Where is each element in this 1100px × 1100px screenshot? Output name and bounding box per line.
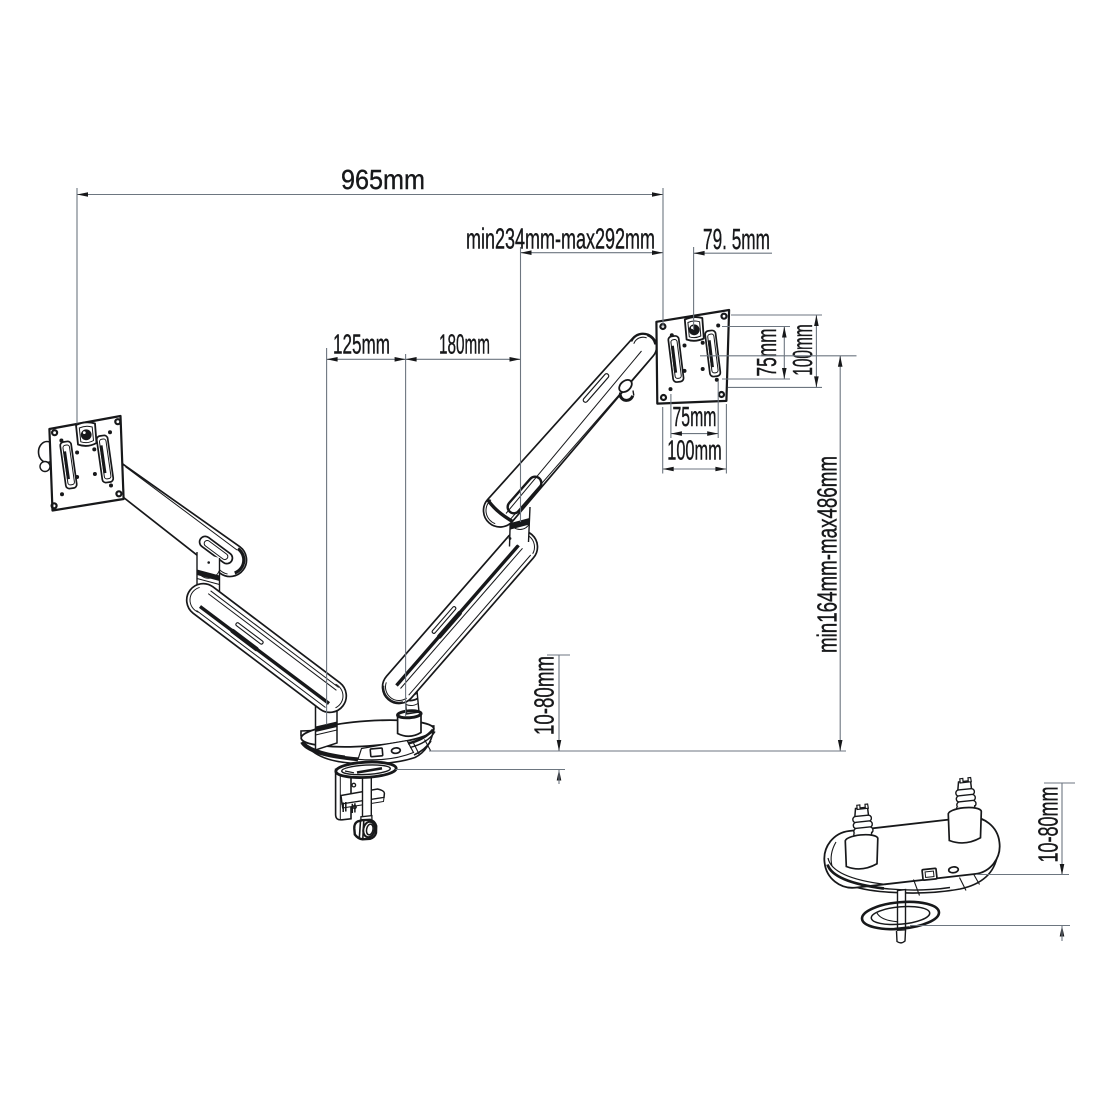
svg-text:75mm: 75mm [673,401,717,432]
svg-text:75mm: 75mm [751,329,782,377]
svg-text:125mm: 125mm [333,329,390,360]
svg-text:10-80mm: 10-80mm [1033,787,1064,863]
svg-text:100mm: 100mm [667,435,722,466]
svg-text:min164mm-max486mm: min164mm-max486mm [812,456,843,653]
svg-text:965mm: 965mm [341,164,425,195]
svg-text:10-80mm: 10-80mm [529,656,560,735]
svg-text:min234mm-max292mm: min234mm-max292mm [466,224,655,256]
svg-text:79. 5mm: 79. 5mm [703,224,770,256]
svg-text:100mm: 100mm [787,324,818,376]
svg-text:180mm: 180mm [439,329,490,360]
